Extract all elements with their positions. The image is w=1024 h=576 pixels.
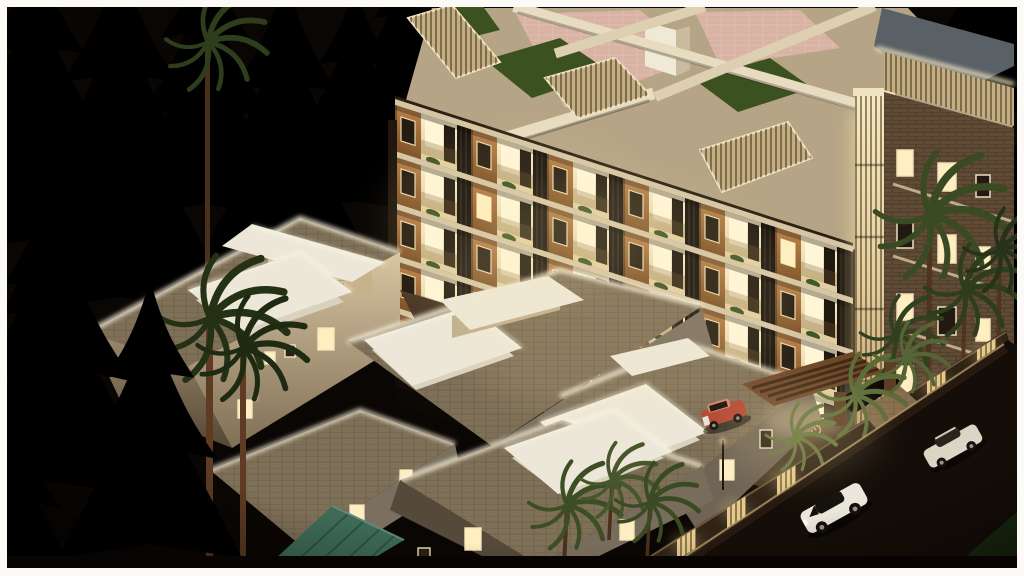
render-scene: Night-time aerial 3D architectural rende… xyxy=(7,7,1017,568)
architectural-night-render: Night-time aerial 3D architectural rende… xyxy=(7,7,1017,568)
vignette xyxy=(7,7,1017,568)
page-background: Night-time aerial 3D architectural rende… xyxy=(0,0,1024,576)
bottom-letterbox-bar xyxy=(7,556,1017,568)
